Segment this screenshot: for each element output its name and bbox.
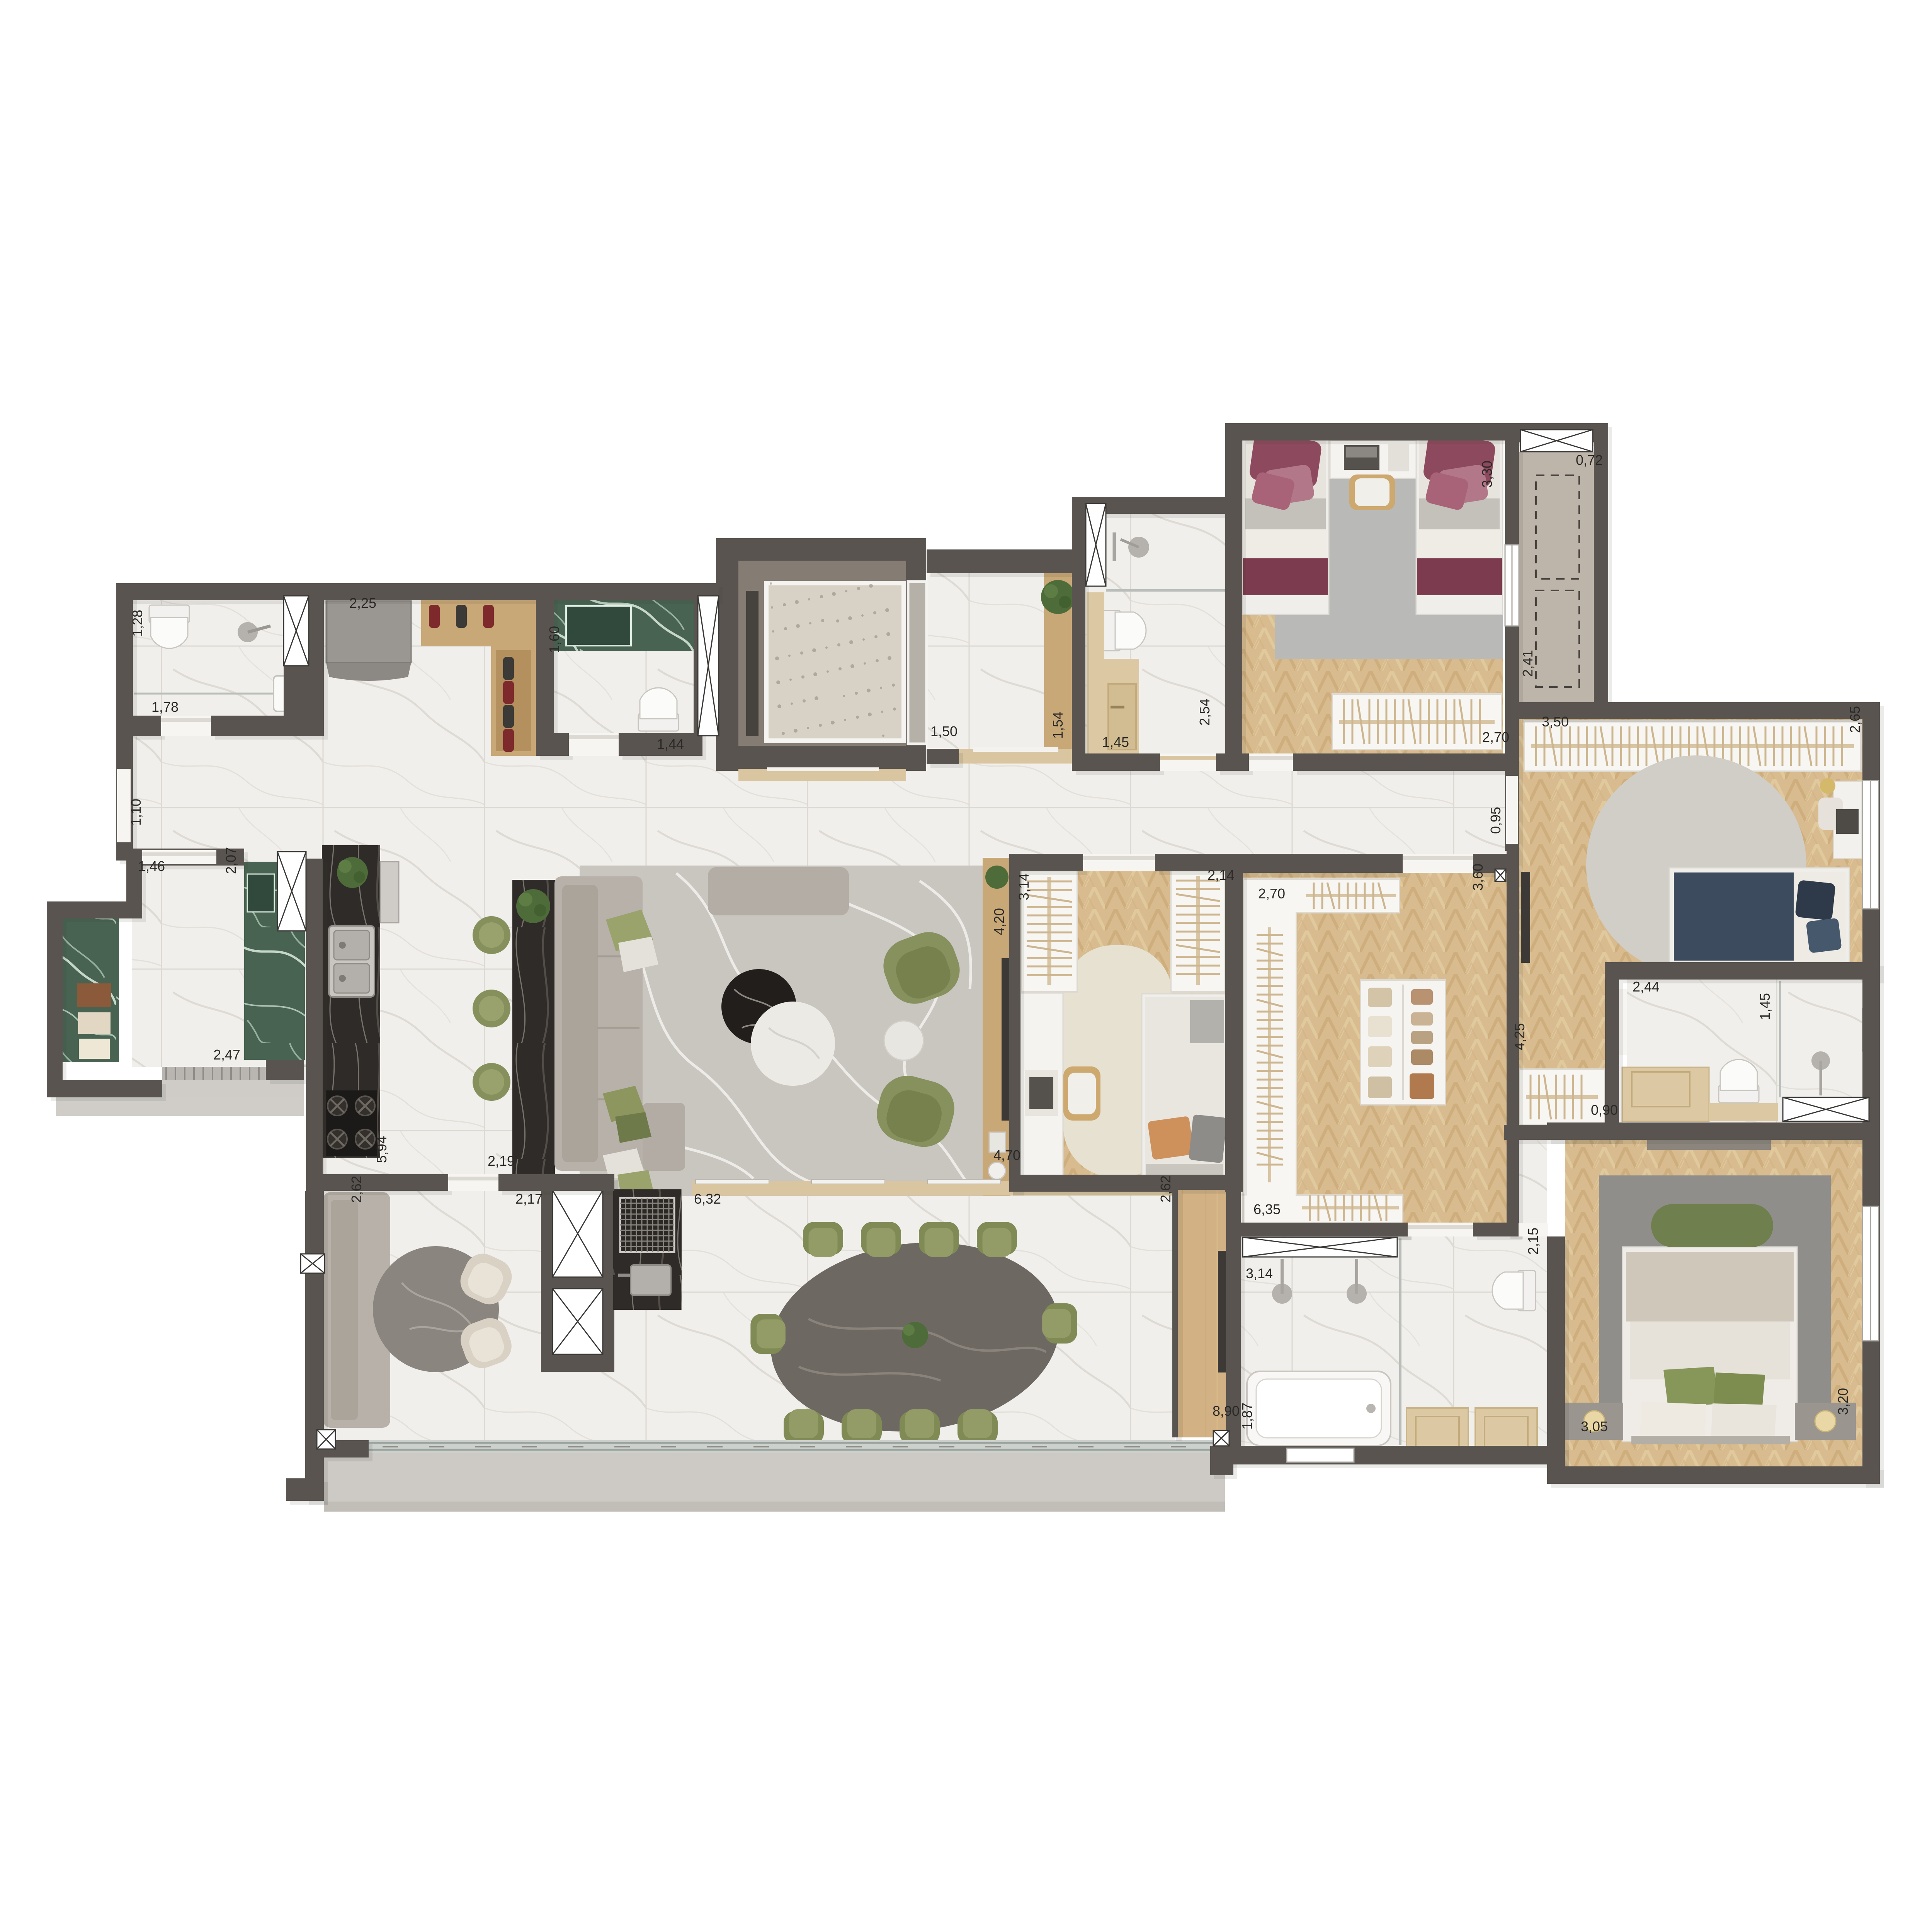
svg-text:3,60: 3,60 bbox=[1470, 864, 1486, 891]
svg-text:0,72: 0,72 bbox=[1576, 452, 1603, 468]
svg-text:2,19: 2,19 bbox=[488, 1153, 515, 1169]
svg-text:2,17: 2,17 bbox=[515, 1191, 543, 1207]
svg-text:1,28: 1,28 bbox=[129, 610, 145, 637]
svg-text:1,10: 1,10 bbox=[128, 799, 144, 826]
svg-text:6,35: 6,35 bbox=[1253, 1201, 1281, 1217]
svg-text:3,05: 3,05 bbox=[1581, 1418, 1608, 1434]
svg-text:0,90: 0,90 bbox=[1591, 1102, 1618, 1118]
svg-text:1,46: 1,46 bbox=[138, 858, 165, 874]
svg-text:3,20: 3,20 bbox=[1835, 1388, 1851, 1415]
svg-text:8,90: 8,90 bbox=[1213, 1403, 1240, 1419]
svg-text:1,87: 1,87 bbox=[1239, 1403, 1255, 1430]
svg-text:2,15: 2,15 bbox=[1525, 1228, 1541, 1255]
svg-text:2,62: 2,62 bbox=[349, 1176, 364, 1203]
svg-text:3,30: 3,30 bbox=[1479, 461, 1495, 488]
svg-text:3,14: 3,14 bbox=[1246, 1265, 1273, 1281]
svg-text:1,45: 1,45 bbox=[1102, 734, 1129, 750]
svg-text:2,65: 2,65 bbox=[1847, 706, 1863, 733]
svg-text:0,95: 0,95 bbox=[1488, 807, 1503, 834]
svg-text:4,25: 4,25 bbox=[1512, 1023, 1527, 1050]
svg-text:3,14: 3,14 bbox=[1016, 873, 1032, 900]
svg-text:2,62: 2,62 bbox=[1158, 1175, 1173, 1202]
svg-text:2,47: 2,47 bbox=[213, 1047, 240, 1063]
svg-text:2,70: 2,70 bbox=[1482, 729, 1509, 745]
svg-text:2,07: 2,07 bbox=[223, 847, 239, 874]
svg-text:2,14: 2,14 bbox=[1207, 867, 1235, 883]
svg-text:1,60: 1,60 bbox=[546, 626, 562, 653]
svg-text:1,54: 1,54 bbox=[1050, 712, 1066, 739]
svg-text:6,32: 6,32 bbox=[694, 1191, 721, 1207]
svg-text:2,44: 2,44 bbox=[1633, 979, 1660, 995]
svg-text:1,78: 1,78 bbox=[151, 699, 179, 715]
svg-text:4,70: 4,70 bbox=[993, 1147, 1020, 1163]
svg-text:2,41: 2,41 bbox=[1520, 650, 1536, 677]
svg-text:2,70: 2,70 bbox=[1258, 886, 1285, 901]
svg-text:1,45: 1,45 bbox=[1757, 993, 1773, 1020]
svg-text:1,44: 1,44 bbox=[657, 736, 684, 752]
svg-text:5,94: 5,94 bbox=[374, 1136, 389, 1163]
svg-text:3,50: 3,50 bbox=[1542, 714, 1569, 730]
svg-text:1,50: 1,50 bbox=[930, 723, 957, 739]
svg-text:2,54: 2,54 bbox=[1197, 699, 1213, 726]
svg-text:2,25: 2,25 bbox=[349, 595, 376, 611]
svg-text:4,20: 4,20 bbox=[991, 908, 1007, 935]
